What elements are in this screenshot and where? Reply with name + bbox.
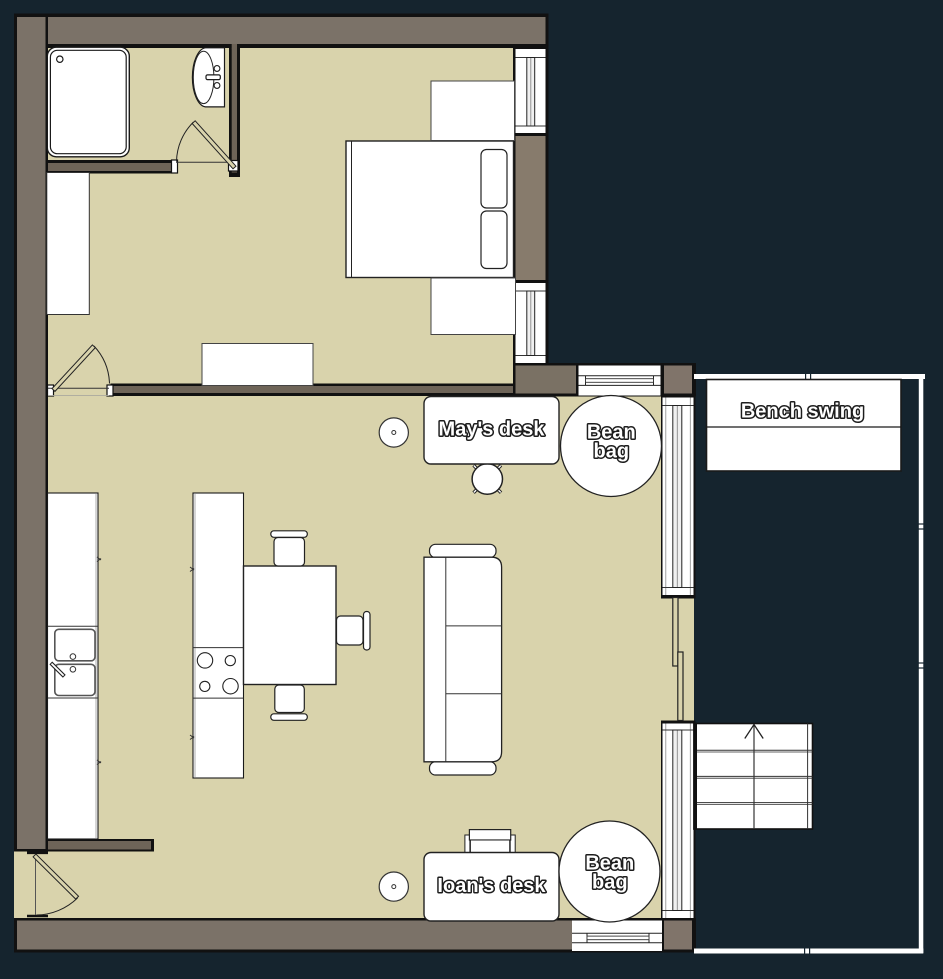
svg-text:May's desk: May's desk	[439, 419, 546, 441]
svg-text:Bench swing: Bench swing	[741, 401, 864, 423]
svg-text:bag: bag	[592, 872, 628, 894]
svg-text:bag: bag	[594, 441, 630, 463]
svg-text:Ioan's desk: Ioan's desk	[437, 875, 546, 897]
